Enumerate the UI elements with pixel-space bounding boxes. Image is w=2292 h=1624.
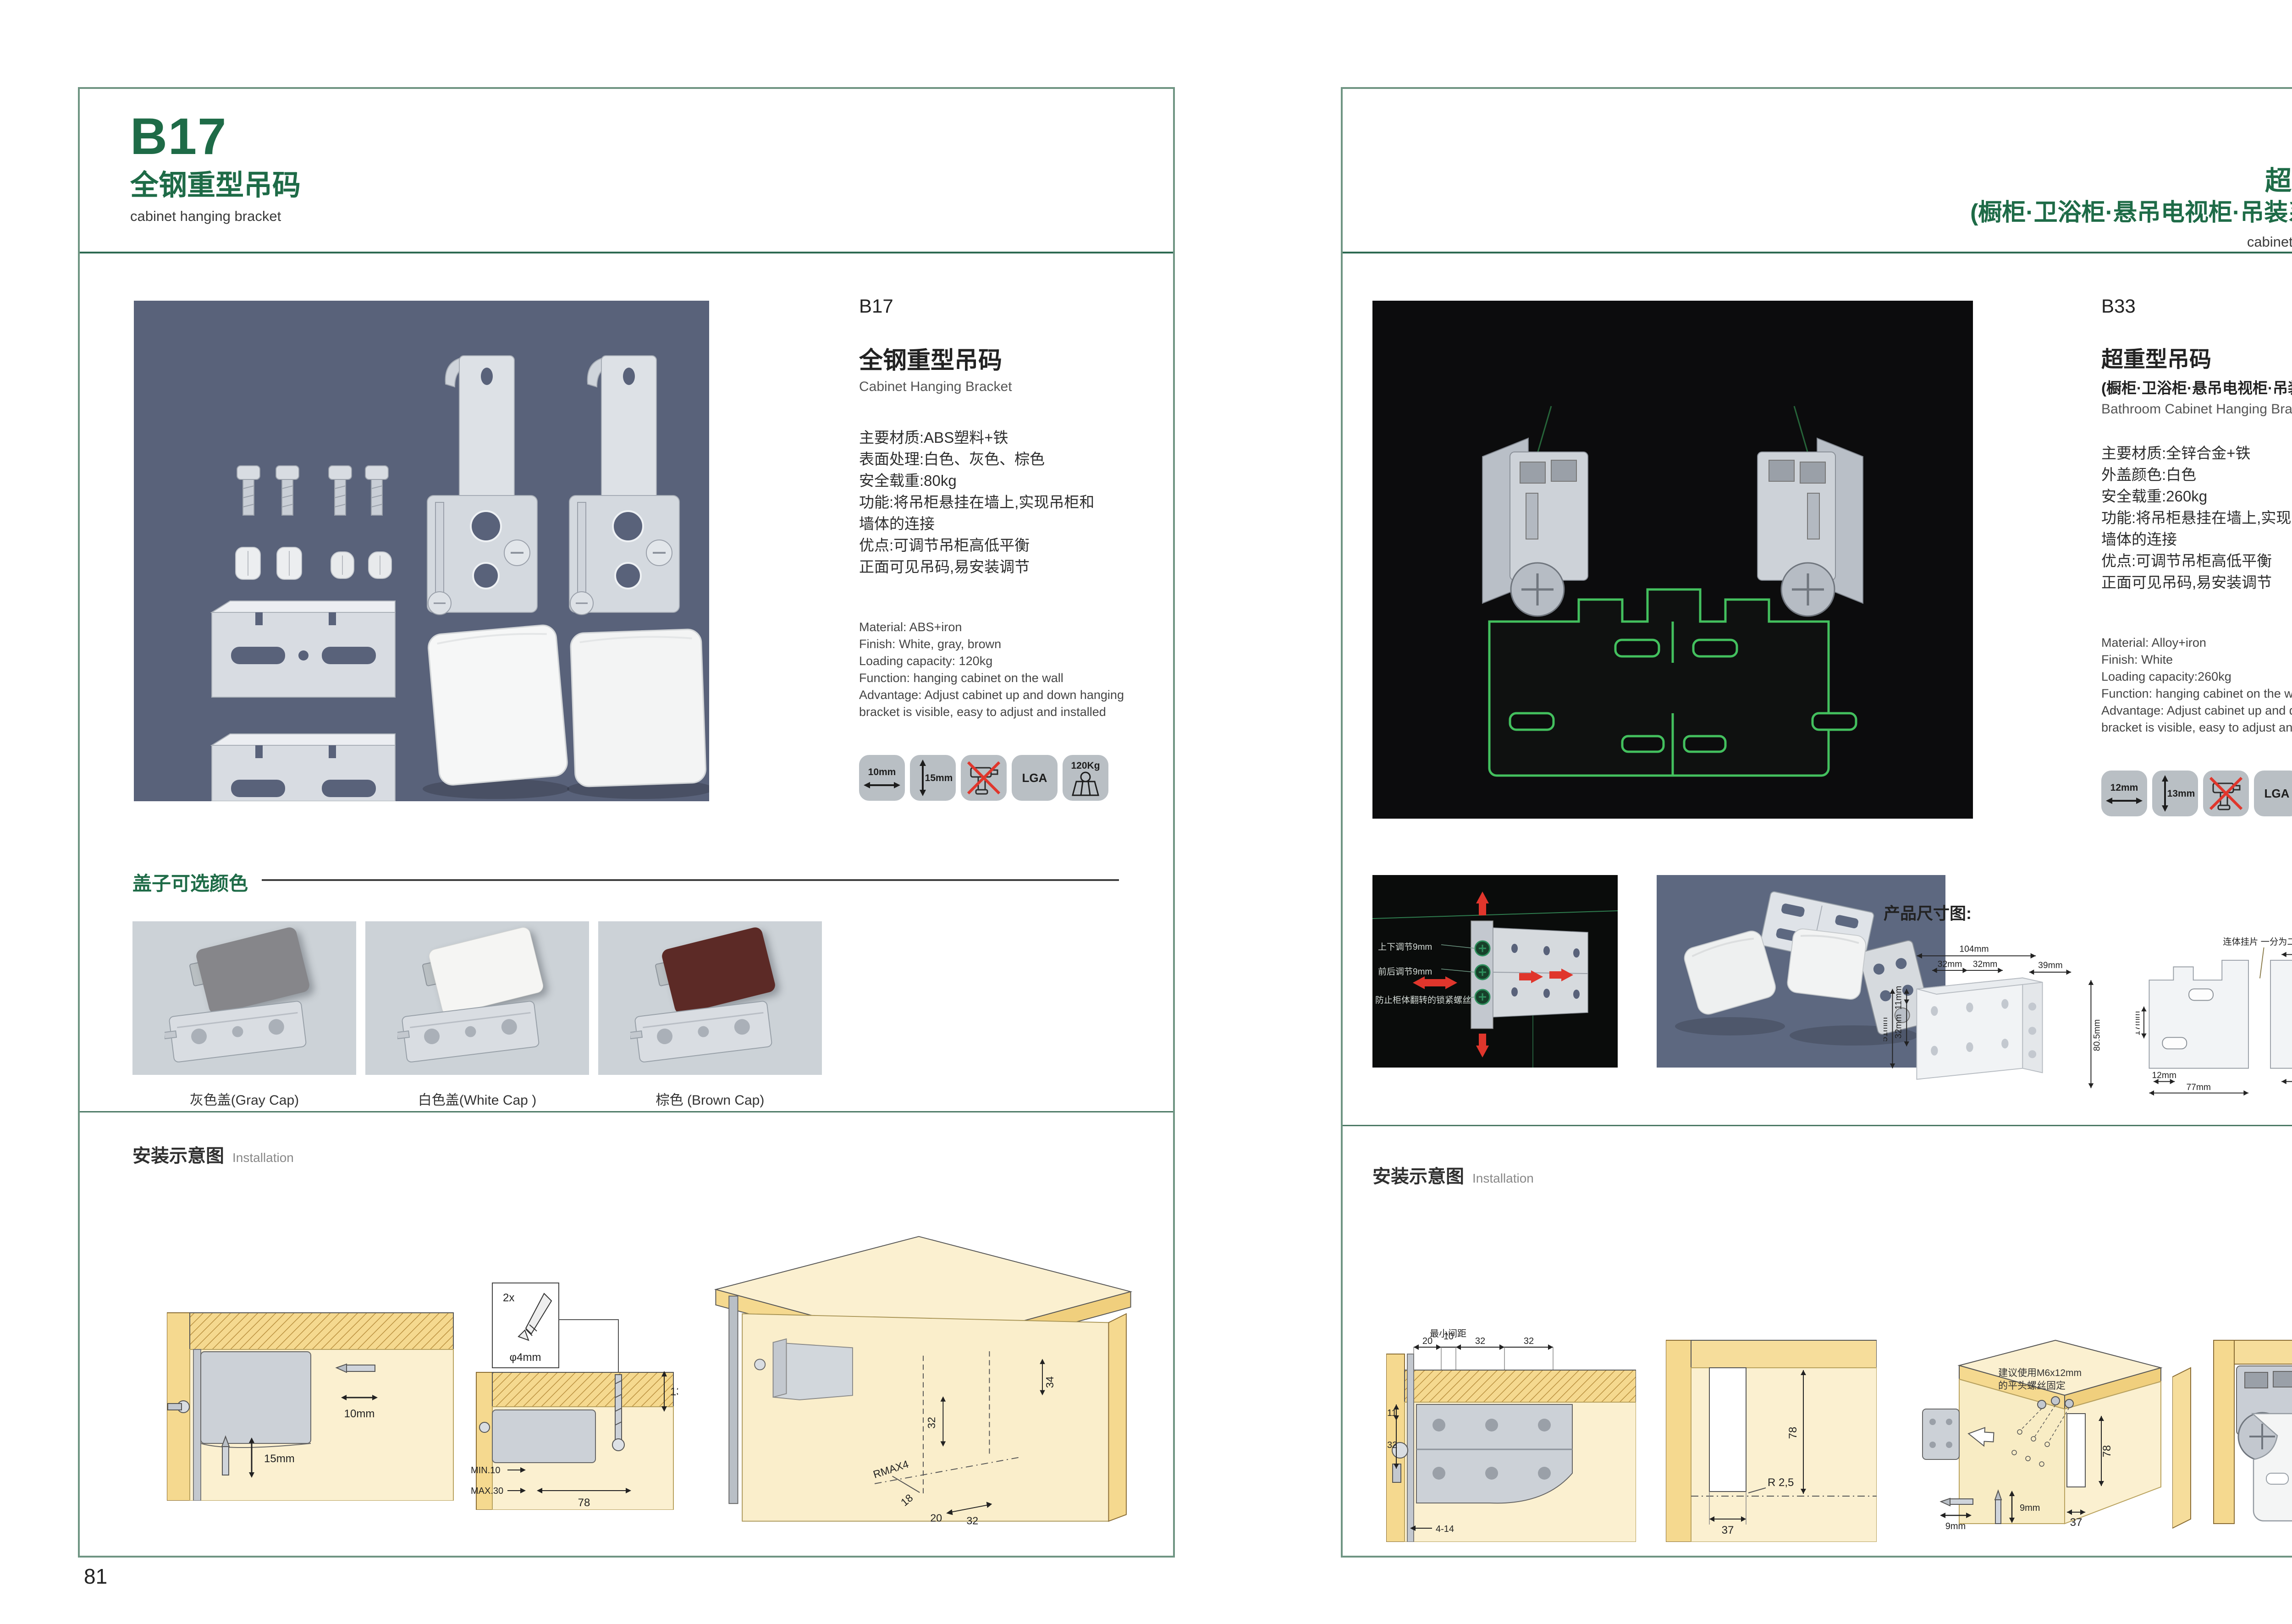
right-install-heading: 安装示意图Installation — [1372, 1162, 1534, 1188]
dim-15mm: 15mm — [264, 1453, 295, 1465]
bracket-small — [1923, 1409, 1959, 1459]
bracket-with-cap — [2237, 1366, 2292, 1521]
dim-32a: 32 — [1475, 1336, 1485, 1346]
badge-lga-cert: LGA — [2254, 771, 2292, 816]
badge-width-label: 12mm — [2110, 782, 2138, 793]
driver-bit-vertical — [222, 1437, 229, 1475]
dim-17mm: 17mm — [2136, 1011, 2142, 1035]
cap-bracket-illustration — [165, 995, 316, 1073]
screw-diameter: φ4mm — [510, 1351, 541, 1364]
spec-line: bracket is visible, easy to adjust and i… — [2101, 719, 2292, 736]
dim-32mm-b: 32mm — [1973, 959, 1997, 969]
badge-load-label: 120Kg — [1071, 760, 1100, 771]
screw-note-line1: 建议使用M6x12mm — [1998, 1368, 2082, 1378]
dim-11mm: 11mm — [1894, 986, 1904, 1010]
dim-78: 78 — [1787, 1427, 1799, 1439]
cap-caption: 棕色 (Brown Cap) — [598, 1089, 822, 1109]
plate-label: 连体挂片 一分为二 — [2223, 937, 2292, 947]
spec-line: 墙体的连接 — [2101, 528, 2292, 550]
dim-11: 11 — [1387, 1408, 1397, 1418]
dim-77mm: 77mm — [2186, 1083, 2210, 1092]
page-b33: B33 超重型吊码 (橱柜·卫浴柜·悬吊电视柜·吊装系统 专用) cabinet… — [1341, 87, 2292, 1558]
spec-line: Material: ABS+iron — [859, 619, 1152, 636]
dim-32b: 32 — [966, 1514, 978, 1526]
right-subtitle-cn: (橱柜·卫浴柜·悬吊电视柜·吊装系统 专用) — [1970, 201, 2292, 225]
detail-name-cn: 全钢重型吊码 — [859, 341, 1152, 375]
left-badges-row: 10mm 15mm LGA 120Kg — [859, 755, 1152, 801]
detail-name-cn: 超重型吊码 — [2101, 341, 2292, 373]
spec-line: Finish: White, gray, brown — [859, 636, 1152, 653]
detail-code: B33 — [2101, 295, 2292, 317]
cap-option-brown: 棕色 (Brown Cap) — [598, 921, 822, 1123]
spec-line: 优点:可调节吊柜高低平衡 — [859, 534, 1152, 556]
feature-label-frontback: 前后调节9mm — [1378, 965, 1432, 977]
badge-cert-label: LGA — [1022, 771, 1047, 785]
spec-line: Function: hanging cabinet on the wall — [859, 670, 1152, 687]
spec-line: 优点:可调节吊柜高低平衡 — [2101, 550, 2292, 572]
feature-photo-annotated: 上下调节9mm 前后调节9mm 防止柜体翻转的锁紧螺丝 — [1372, 875, 1618, 1068]
dim-12mm: 12mm — [2152, 1071, 2176, 1080]
badge-drill-width: 10mm — [859, 755, 905, 801]
dim-32: 32 — [926, 1417, 937, 1429]
dim-37: 37 — [2070, 1516, 2083, 1529]
cap-option-gray: 灰色盖(Gray Cap) — [132, 921, 356, 1123]
caps-heading-rule — [262, 879, 1119, 881]
page-b17: B17 全钢重型吊码 cabinet hanging bracket — [78, 87, 1175, 1558]
dim-32mm-a: 32mm — [1938, 959, 1962, 969]
dim-10mm: 10mm — [344, 1408, 375, 1420]
spec-line: Material: Alloy+iron — [2101, 634, 2292, 651]
cap-bracket-illustration — [397, 995, 549, 1073]
product-dimensions-section: 产品尺寸图: 104mm 32mm 32mm 39mm 11mm — [1884, 900, 2292, 1099]
driver-bit-horizontal — [1941, 1498, 1973, 1506]
dim-20: 20 — [930, 1512, 942, 1524]
left-header-separator — [80, 252, 1173, 253]
dim-9mm-h: 9mm — [1945, 1521, 1966, 1531]
dims-heading: 产品尺寸图: — [1884, 900, 2292, 924]
detail-specs-cn: 主要材质:ABS塑料+铁 表面处理:白色、灰色、棕色 安全载重:80kg 功能:… — [859, 427, 1152, 578]
cap-option-white: 白色盖(White Cap ) — [365, 921, 589, 1123]
badge-drill-depth: 15mm — [910, 755, 956, 801]
right-title-cn: 超重型吊码 — [1970, 168, 2292, 194]
right-install-separator — [1343, 1125, 2292, 1126]
spec-line: Finish: White — [2101, 651, 2292, 668]
spec-line: 安全载重:260kg — [2101, 485, 2292, 507]
dim-34: 34 — [1044, 1376, 1056, 1388]
caps-heading: 盖子可选颜色 — [132, 868, 248, 896]
spec-line: 正面可见吊码,易安装调节 — [859, 556, 1152, 578]
b17-install-diagram-2: 2x φ4mm 13 MIN.10 MAX.30 78 — [467, 1281, 678, 1510]
b33-product-photo-illustration — [1372, 301, 1973, 819]
detail-sub-cn: (橱柜·卫浴柜·悬吊电视柜·吊装系统 专用) — [2101, 376, 2292, 398]
dim-78: 78 — [578, 1497, 590, 1509]
spec-line: Loading capacity: 120kg — [859, 653, 1152, 670]
spec-line: 主要材质:ABS塑料+铁 — [859, 427, 1152, 448]
dim-32b: 32 — [1524, 1336, 1534, 1346]
badge-load-capacity: 120Kg — [1063, 755, 1108, 801]
b33-install-diagram-3: 建议使用M6x12mm 的平头螺丝固定 78 37 9mm 9mm — [1904, 1322, 2165, 1537]
left-subtitle-en: cabinet hanging bracket — [130, 209, 301, 223]
dim-51mm: 51mm — [1884, 1017, 1890, 1041]
left-title-cn: 全钢重型吊码 — [130, 171, 301, 200]
b33-install-diagram-1: 最小间距 20 10 32 32 11 32 4-14 — [1386, 1327, 1636, 1542]
dim-104mm: 104mm — [1959, 945, 1989, 954]
spec-line: Advantage: Adjust cabinet up and down ha… — [2101, 702, 2292, 719]
badge-height-label: 15mm — [925, 773, 953, 783]
plate-bracket — [1392, 1404, 1572, 1503]
dim-32mm-l: 32mm — [1894, 1014, 1904, 1039]
spec-line: 外盖颜色:白色 — [2101, 464, 2292, 485]
dim-9mm-v: 9mm — [2020, 1503, 2040, 1513]
right-main-photo — [1372, 301, 1973, 819]
plate-dimension-drawing: 连体挂片 一分为二 55mm 39mm 55mm 8mm 17mm 12mm 6… — [2136, 936, 2292, 1099]
cap-caption: 灰色盖(Gray Cap) — [132, 1089, 356, 1109]
right-detail-panel: B33 超重型吊码 (橱柜·卫浴柜·悬吊电视柜·吊装系统 专用) Bathroo… — [2101, 295, 2292, 816]
detail-specs-cn: 主要材质:全锌合金+铁 外盖颜色:白色 安全载重:260kg 功能:将吊柜悬挂在… — [2101, 442, 2292, 593]
screw-note-line2: 的平头螺丝固定 — [1998, 1381, 2066, 1391]
dim-max30: MAX.30 — [471, 1486, 503, 1496]
b33-install-diagram-2: 78 R 2,5 37 — [1666, 1327, 1877, 1542]
white-cap-part-right — [1786, 928, 1867, 1000]
b17-install-diagram-1: 10mm 15mm — [167, 1304, 460, 1501]
detail-name-en: Cabinet Hanging Bracket — [859, 379, 1152, 395]
install-heading-cn: 安装示意图 — [132, 1146, 224, 1166]
badge-no-drill-icon — [961, 755, 1007, 801]
detail-specs-en: Material: ABS+iron Finish: White, gray, … — [859, 619, 1152, 721]
dim-13: 13 — [670, 1386, 678, 1398]
badge-drill-width: 12mm — [2101, 771, 2147, 816]
badge-width-label: 10mm — [868, 767, 896, 777]
b17-parts-photo-illustration — [134, 301, 709, 801]
install-heading-en: Installation — [232, 1151, 294, 1165]
spec-line: 表面处理:白色、灰色、棕色 — [859, 448, 1152, 470]
badge-height-label: 13mm — [2167, 788, 2195, 799]
b33-install-diagram-4 — [2172, 1322, 2292, 1537]
feature-label-updown: 上下调节9mm — [1378, 940, 1432, 952]
dim-r25: R 2,5 — [1768, 1476, 1794, 1489]
badge-no-drill-icon — [2203, 771, 2249, 816]
dim-78: 78 — [2101, 1445, 2113, 1458]
right-badges-row: 12mm 13mm LGA 260Kg — [2101, 771, 2292, 816]
left-install-separator — [80, 1111, 1173, 1112]
install-heading-cn: 安装示意图 — [1372, 1167, 1464, 1187]
left-main-photo — [134, 301, 709, 801]
dims-drawings-row: 104mm 32mm 32mm 39mm 11mm 32mm 51mm 80.5… — [1884, 936, 2292, 1099]
cap-photo — [598, 921, 822, 1075]
right-header-separator — [1343, 252, 2292, 253]
caps-row: 灰色盖(Gray Cap) 白色盖(White Cap ) — [132, 921, 1123, 1123]
caps-color-section: 盖子可选颜色 灰色盖(Gray Cap) — [132, 868, 1123, 1123]
right-header: B33 超重型吊码 (橱柜·卫浴柜·悬吊电视柜·吊装系统 专用) cabinet… — [1970, 107, 2292, 249]
cap-caption: 白色盖(White Cap ) — [365, 1089, 589, 1109]
spec-line: Function: hanging cabinet on the wall — [2101, 685, 2292, 702]
badge-drill-depth: 13mm — [2152, 771, 2198, 816]
spec-line: 功能:将吊柜悬挂在墙上,实现吊柜和 — [2101, 507, 2292, 528]
page-number-left: 81 — [84, 1564, 107, 1589]
dim-min10: MIN.10 — [471, 1465, 500, 1475]
bracket-dimension-drawing: 104mm 32mm 32mm 39mm 11mm 32mm 51mm 80.5… — [1884, 936, 2122, 1099]
spec-line: Loading capacity:260kg — [2101, 668, 2292, 685]
left-product-code: B17 — [130, 111, 301, 162]
cap-bracket-illustration — [630, 995, 782, 1073]
badge-cert-label: LGA — [2264, 787, 2290, 800]
left-detail-panel: B17 全钢重型吊码 Cabinet Hanging Bracket 主要材质:… — [859, 295, 1152, 801]
badge-lga-cert: LGA — [1012, 755, 1058, 801]
detail-specs-en: Material: Alloy+iron Finish: White Loadi… — [2101, 634, 2292, 736]
feature-label-lockscrew: 防止柜体翻转的锁紧螺丝 — [1375, 993, 1471, 1006]
spec-line: 正面可见吊码,易安装调节 — [2101, 572, 2292, 593]
dim-32l: 32 — [1387, 1440, 1397, 1450]
spec-line: 安全载重:80kg — [859, 470, 1152, 491]
right-subtitle-en: cabinet hanging bracket — [1970, 235, 2292, 249]
install-heading-en: Installation — [1472, 1171, 1534, 1185]
dim-10: 10 — [1444, 1332, 1454, 1342]
dim-20: 20 — [1422, 1336, 1432, 1346]
detail-code: B17 — [859, 295, 1152, 317]
spec-line: 墙体的连接 — [859, 513, 1152, 534]
detail-name-en: Bathroom Cabinet Hanging Bracket — [2101, 402, 2292, 417]
right-product-code: B33 — [1970, 107, 2292, 159]
spec-line: bracket is visible, easy to adjust and i… — [859, 704, 1152, 721]
dim-37: 37 — [1722, 1524, 1734, 1536]
dim-39mm: 39mm — [2038, 961, 2062, 970]
cap-photo — [365, 921, 589, 1075]
left-header: B17 全钢重型吊码 cabinet hanging bracket — [130, 111, 301, 223]
green-adjust-screws — [1475, 941, 1490, 1004]
dim-80-5mm: 80.5mm — [2093, 1019, 2102, 1051]
b17-install-diagram-3: 34 32 RMAX4 18 20 32 — [685, 1210, 1162, 1528]
left-install-heading: 安装示意图Installation — [132, 1141, 294, 1167]
spec-line: Advantage: Adjust cabinet up and down ha… — [859, 687, 1152, 704]
caps-heading-row: 盖子可选颜色 — [132, 868, 1123, 896]
cap-photo — [132, 921, 356, 1075]
spec-line: 主要材质:全锌合金+铁 — [2101, 442, 2292, 464]
spec-line: 功能:将吊柜悬挂在墙上,实现吊柜和 — [859, 491, 1152, 513]
screw-count: 2x — [503, 1292, 514, 1304]
dim-4-14: 4-14 — [1436, 1524, 1454, 1534]
